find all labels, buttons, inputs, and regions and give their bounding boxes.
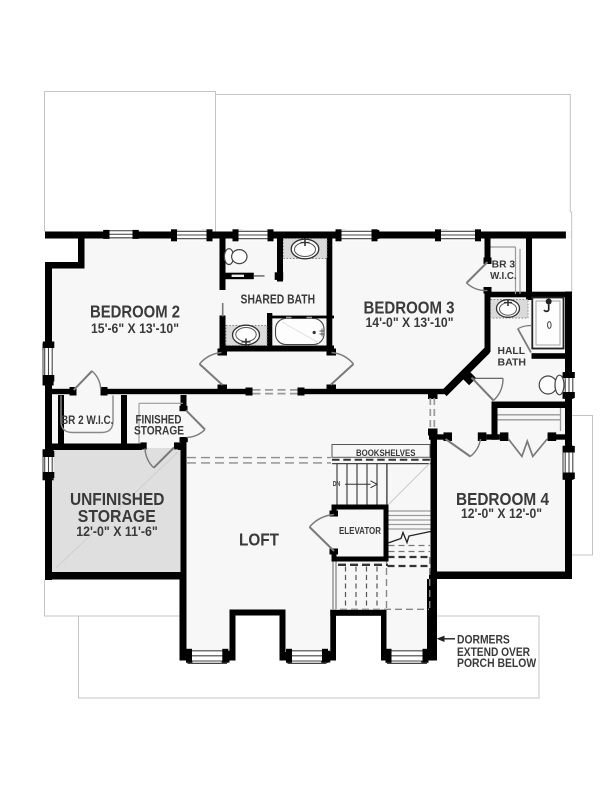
svg-text:FINISHED: FINISHED (136, 414, 182, 426)
svg-text:BATH: BATH (498, 357, 527, 368)
svg-text:PORCH BELOW: PORCH BELOW (457, 658, 536, 670)
svg-text:14'-0" X 13'-10": 14'-0" X 13'-10" (366, 314, 454, 330)
svg-text:HALL: HALL (498, 346, 526, 357)
svg-text:BEDROOM 2: BEDROOM 2 (90, 302, 180, 322)
svg-text:DORMERS: DORMERS (457, 635, 510, 647)
svg-text:15'-6" X 13'-10": 15'-6" X 13'-10" (91, 320, 179, 336)
svg-text:LOFT: LOFT (239, 529, 279, 549)
svg-text:BR 3: BR 3 (492, 260, 516, 271)
svg-text:BR 2 W.I.C.: BR 2 W.I.C. (61, 415, 114, 427)
svg-text:STORAGE: STORAGE (134, 426, 184, 438)
svg-text:EXTEND OVER: EXTEND OVER (457, 647, 531, 659)
svg-text:STORAGE: STORAGE (78, 506, 156, 526)
svg-text:BOOKSHELVES: BOOKSHELVES (356, 448, 416, 458)
svg-text:12'-0" X 11'-6": 12'-0" X 11'-6" (76, 524, 158, 539)
svg-text:W.I.C.: W.I.C. (490, 271, 517, 282)
svg-text:ELEVATOR: ELEVATOR (339, 526, 382, 537)
svg-text:DN: DN (333, 481, 341, 488)
svg-text:SHARED BATH: SHARED BATH (241, 293, 316, 307)
svg-text:12'-0" X 12'-0": 12'-0" X 12'-0" (461, 506, 542, 521)
